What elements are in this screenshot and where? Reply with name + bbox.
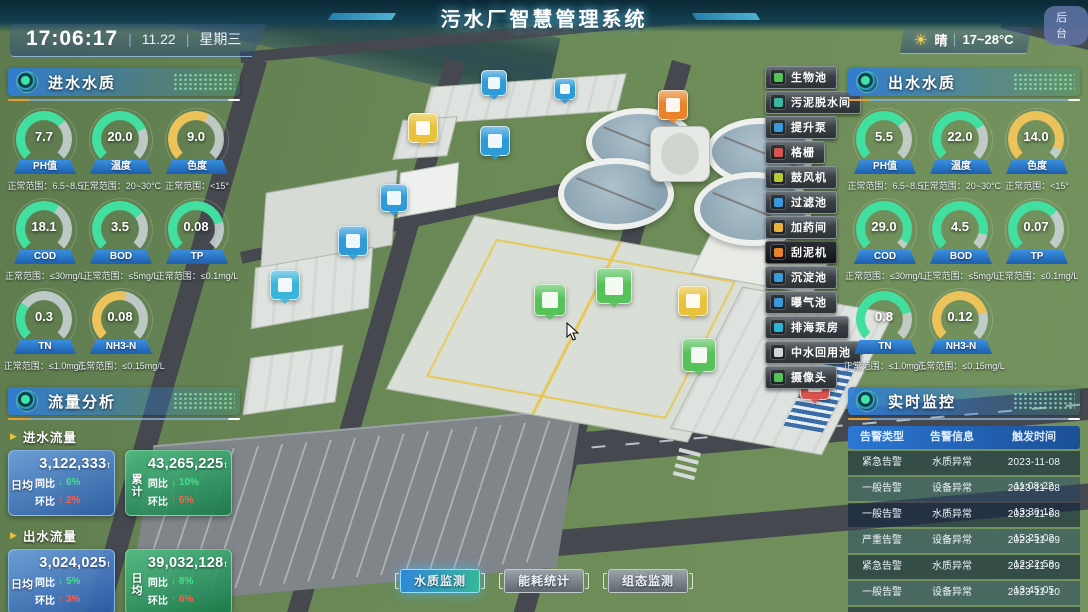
left-panel: 进水水质 7.7 PH值 正常范围：6.5~8.5 20.0 温度 正常范围：2… [8,68,240,612]
up-arrow-icon: ↑ [58,495,63,506]
clock: 17:06:17 | 11.22 | 星期三 [10,24,267,57]
flow-value: 3,122,333t [35,456,110,472]
col-alarm-type: 告警类型 [848,426,916,449]
gauge-value: 5.5 [856,129,912,144]
gauge-normal-range: 正常范围：≤0.1mg/L [996,269,1078,282]
outlet-quality-header: 出水水质 [848,68,1080,96]
facility-button[interactable]: 摄像头 [765,366,837,389]
col-trigger-time: 触发时间 [988,426,1080,449]
flow-period-label: 累计 [126,474,148,498]
panel-badge-icon [856,390,878,412]
divider: | [186,31,190,47]
quality-gauge: 0.07 TP 正常范围：≤0.1mg/L [1000,199,1074,285]
gauge-normal-range: 正常范围：≤0.15mg/L [77,359,164,372]
panel-badge-icon [856,71,878,93]
bar-screen-icon [770,144,786,160]
gauge-label: 温度 [90,160,152,174]
divider: | [128,31,132,47]
flow-card-body: 43,265,225t 同比 ↓ 10% 环比 ↑ 6% [148,456,231,515]
quality-gauge: 0.08 TP 正常范围：≤0.1mg/L [160,199,234,285]
quality-gauge: 0.8 TN 正常范围：≤1.0mg/L [848,289,922,375]
bio-pool-icon [770,69,786,85]
quality-gauge: 29.0 COD 正常范围：≤30mg/L [848,199,922,285]
gauge-normal-range: 正常范围：<15° [1005,179,1069,192]
dots-decoration [1013,73,1075,91]
gauge-normal-range: 正常范围：≤0.1mg/L [156,269,238,282]
title-decoration [692,13,760,20]
inlet-gauges: 7.7 PH值 正常范围：6.5~8.5 20.0 温度 正常范围：20~30°… [8,109,240,375]
gauge-label: 色度 [1006,160,1068,174]
inlet-flow-cards: 日均 3,122,333t 同比 ↓ 6% 环比 ↑ 2% [8,450,240,516]
dosing-room-icon [770,219,786,235]
facility-button-label: 刮泥机 [791,244,827,260]
yoy-row: 同比 ↓ 10% [148,475,227,490]
weather-condition: 晴 [934,30,947,49]
facility-button-label: 污泥脱水间 [791,94,851,110]
quality-gauge: 0.08 NH3-N 正常范围：≤0.15mg/L [84,289,158,375]
gauge-label: PH值 [14,160,76,174]
gauge-value: 0.07 [1008,219,1064,234]
quality-gauge: 3.5 BOD 正常范围：≤5mg/L [84,199,158,285]
gauge-label: NH3-N [90,340,152,354]
mom-row: 环比 ↑ 2% [35,493,110,508]
gauge-value: 22.0 [932,129,988,144]
mom-row: 环比 ↑ 6% [148,592,227,607]
gauge-label: TP [1006,250,1068,264]
panel-badge-icon [16,71,38,93]
weather: ☀ 晴 17~28°C [900,27,1032,54]
header-underline [8,418,240,420]
dots-decoration [1013,392,1075,410]
flow-period-label: 日均 [9,480,35,492]
header-underline [848,418,1080,420]
facility-button[interactable]: 过滤池 [765,191,837,214]
gauge-normal-range: 正常范围：≤5mg/L [924,269,999,282]
aeration-pool-icon [770,294,786,310]
gauge-normal-range: 正常范围：<15° [165,179,229,192]
flow-card: 日均 3,122,333t 同比 ↓ 6% 环比 ↑ 2% [8,450,115,516]
facility-button-label: 生物池 [791,69,827,85]
inlet-quality-header: 进水水质 [8,68,240,96]
divider [954,33,955,47]
monitoring-header: 实时监控 [848,387,1080,415]
panel-badge-icon [16,390,38,412]
camera-marker[interactable] [596,268,632,304]
outlet-gauges: 5.5 PH值 正常范围：6.5~8.5 22.0 温度 正常范围：20~30°… [848,109,1080,375]
alarm-row[interactable]: 一般告警 水质异常 2023-11-08 15:25:02 [848,503,1080,527]
quality-gauge: 9.0 色度 正常范围：<15° [160,109,234,195]
reclaimed-water-pool-icon [770,344,786,360]
alarm-row[interactable]: 紧急告警 水质异常 2023-11-08 11:08:22 [848,451,1080,475]
gauge-label: 色度 [166,160,228,174]
facility-button-label: 格栅 [791,144,815,160]
aeration-marker[interactable] [380,184,408,212]
gauge-value: 0.08 [92,309,148,324]
title-decoration [328,13,396,20]
col-alarm-info: 告警信息 [916,426,988,449]
pump-marker[interactable] [554,78,576,100]
up-arrow-icon: ↑ [171,594,176,605]
gauge-value: 0.12 [932,309,988,324]
gauge-value: 18.1 [16,219,72,234]
inlet-flow-subtitle: ▶ 进水流量 [10,427,240,446]
gauge-value: 20.0 [92,129,148,144]
alarm-row[interactable]: 一般告警 设备异常 2023-11-10 15:02:44 [848,607,1080,612]
facility-button-label: 提升泵 [791,119,827,135]
gauge-value: 0.08 [168,219,224,234]
gauge-label: PH值 [854,160,916,174]
gauge-label: BOD [930,250,992,264]
facility-button-label: 摄像头 [791,369,827,385]
quality-gauge: 20.0 温度 正常范围：20~30°C [84,109,158,195]
gauge-value: 14.0 [1008,129,1064,144]
mouse-cursor [566,322,581,342]
backend-button[interactable]: 后台 [1044,6,1088,45]
dots-decoration [173,73,235,91]
alarm-row[interactable]: 一般告警 设备异常 2023-11-08 13:30:12 [848,477,1080,501]
gauge-normal-range: 正常范围：6.5~8.5 [847,179,922,192]
sedimentation-pool-icon [770,269,786,285]
arrow-icon: ▶ [10,431,17,442]
quality-gauge: 0.3 TN 正常范围：≤1.0mg/L [8,289,82,375]
mom-row: 环比 ↑ 6% [148,493,227,508]
gauge-normal-range: 正常范围：≤5mg/L [84,269,159,282]
alarm-table-header: 告警类型 告警信息 触发时间 [848,426,1080,449]
gauge-value: 7.7 [16,129,72,144]
panel-title: 流量分析 [48,391,116,412]
facility-button-label: 中水回用池 [791,344,851,360]
panel-title: 出水水质 [888,72,956,93]
quality-gauge: 7.7 PH值 正常范围：6.5~8.5 [8,109,82,195]
gauge-normal-range: 正常范围：20~30°C [921,179,1001,192]
gauge-label: BOD [90,250,152,264]
dashboard: 污水厂智慧管理系统 17:06:17 | 11.22 | 星期三 ☀ 晴 17~… [0,0,1088,612]
gauge-label: TP [166,250,228,264]
dots-decoration [173,392,235,410]
gauge-value: 0.3 [16,309,72,324]
facility-button-label: 沉淀池 [791,269,827,285]
mom-row: 环比 ↑ 3% [35,592,110,607]
flow-card-body: 3,122,333t 同比 ↓ 6% 环比 ↑ 2% [35,456,114,515]
facility-button[interactable]: 生物池 [765,66,837,89]
facility-button[interactable]: 格栅 [765,141,825,164]
bottom-button-bar: 水质监测 能耗统计 组态监测 [0,569,1088,593]
gauge-label: COD [854,250,916,264]
facility-button[interactable]: 提升泵 [765,116,837,139]
funnel-marker[interactable] [270,270,300,300]
facility-button-label: 加药间 [791,219,827,235]
gauge-value: 4.5 [932,219,988,234]
down-arrow-icon: ↓ [58,477,63,488]
quality-gauge: 14.0 色度 正常范围：<15° [1000,109,1074,195]
yoy-row: 同比 ↓ 6% [35,475,110,490]
facility-button[interactable]: 污泥脱水间 [765,91,861,114]
gauge-normal-range: 正常范围：≤30mg/L [5,269,85,282]
sun-icon: ☀ [914,31,927,49]
facility-button[interactable]: 鼓风机 [765,166,837,189]
flow-card: 累计 43,265,225t 同比 ↓ 10% 环比 ↑ 6% [125,450,232,516]
quality-gauge: 0.12 NH3-N 正常范围：≤0.15mg/L [924,289,998,375]
header-underline [8,99,240,101]
gauge-label: TN [854,340,916,354]
facility-button-label: 排海泵房 [791,319,839,335]
bottom-tab-button[interactable]: 能耗统计 [504,569,584,593]
gauge-value: 29.0 [856,219,912,234]
fan-marker[interactable] [678,286,708,316]
flow-analysis-header: 流量分析 [8,387,240,415]
facility-button-label: 过滤池 [791,194,827,210]
panel-title: 实时监控 [888,391,956,412]
facility-button[interactable]: 曝气池 [765,291,837,314]
gauge-normal-range: 正常范围：20~30°C [81,179,161,192]
header-underline [848,99,1080,101]
clock-weekday: 星期三 [199,29,241,49]
lift-pump-icon [770,119,786,135]
pump-marker[interactable] [480,126,510,156]
mud-scraper-icon [770,244,786,260]
arrow-icon: ▶ [10,530,17,541]
flow-value: 43,265,225t [148,456,227,472]
weather-temp-range: 17~28°C [962,32,1013,47]
scraper-marker[interactable] [658,90,688,120]
panel-title: 进水水质 [48,72,116,93]
facility-button[interactable]: 加药间 [765,216,837,239]
gauge-normal-range: 正常范围：≤1.0mg/L [844,359,926,372]
quality-gauge: 5.5 PH值 正常范围：6.5~8.5 [848,109,922,195]
bio-marker[interactable] [534,284,566,316]
facility-button[interactable]: 排海泵房 [765,316,849,339]
sea-discharge-pump-icon [770,319,786,335]
blower-icon [770,169,786,185]
gauge-value: 9.0 [168,129,224,144]
clock-time: 17:06:17 [26,27,118,51]
camera-icon [770,369,786,385]
quality-gauge: 22.0 温度 正常范围：20~30°C [924,109,998,195]
quality-gauge: 18.1 COD 正常范围：≤30mg/L [8,199,82,285]
bottom-tab-button[interactable]: 水质监测 [400,569,480,593]
sludge-dewatering-icon [770,94,786,110]
clock-date: 11.22 [142,31,176,47]
facility-button-label: 曝气池 [791,294,827,310]
up-arrow-icon: ↑ [58,594,63,605]
gauge-normal-range: 正常范围：≤30mg/L [845,269,925,282]
facility-button-label: 鼓风机 [791,169,827,185]
facility-button-list: 生物池 污泥脱水间 提升泵 格栅 鼓风机 [765,66,861,389]
gauge-label: NH3-N [930,340,992,354]
down-arrow-icon: ↓ [171,477,176,488]
gauge-value: 3.5 [92,219,148,234]
up-arrow-icon: ↑ [171,495,176,506]
quality-gauge: 4.5 BOD 正常范围：≤5mg/L [924,199,998,285]
fan-marker[interactable] [408,113,438,143]
pump-marker[interactable] [481,70,507,96]
facility-button[interactable]: 刮泥机 [765,241,837,264]
bottom-tab-button[interactable]: 组态监测 [608,569,688,593]
filter-pool-icon [770,194,786,210]
outlet-flow-subtitle: ▶ 出水流量 [10,526,240,545]
gauge-label: TN [14,340,76,354]
gauge-value: 0.8 [856,309,912,324]
alarm-row[interactable]: 严重告警 设备异常 2023-11-09 12:22:58 [848,529,1080,553]
pool-marker[interactable] [338,226,368,256]
gauge-label: 温度 [930,160,992,174]
gauge-normal-range: 正常范围：≤1.0mg/L [4,359,86,372]
right-panel: 出水水质 5.5 PH值 正常范围：6.5~8.5 22.0 温度 正常范围：2… [848,68,1080,612]
facility-button[interactable]: 沉淀池 [765,266,837,289]
camera-marker[interactable] [682,338,716,372]
gauge-normal-range: 正常范围：≤0.15mg/L [917,359,1004,372]
gauge-normal-range: 正常范围：6.5~8.5 [7,179,82,192]
gauge-label: COD [14,250,76,264]
